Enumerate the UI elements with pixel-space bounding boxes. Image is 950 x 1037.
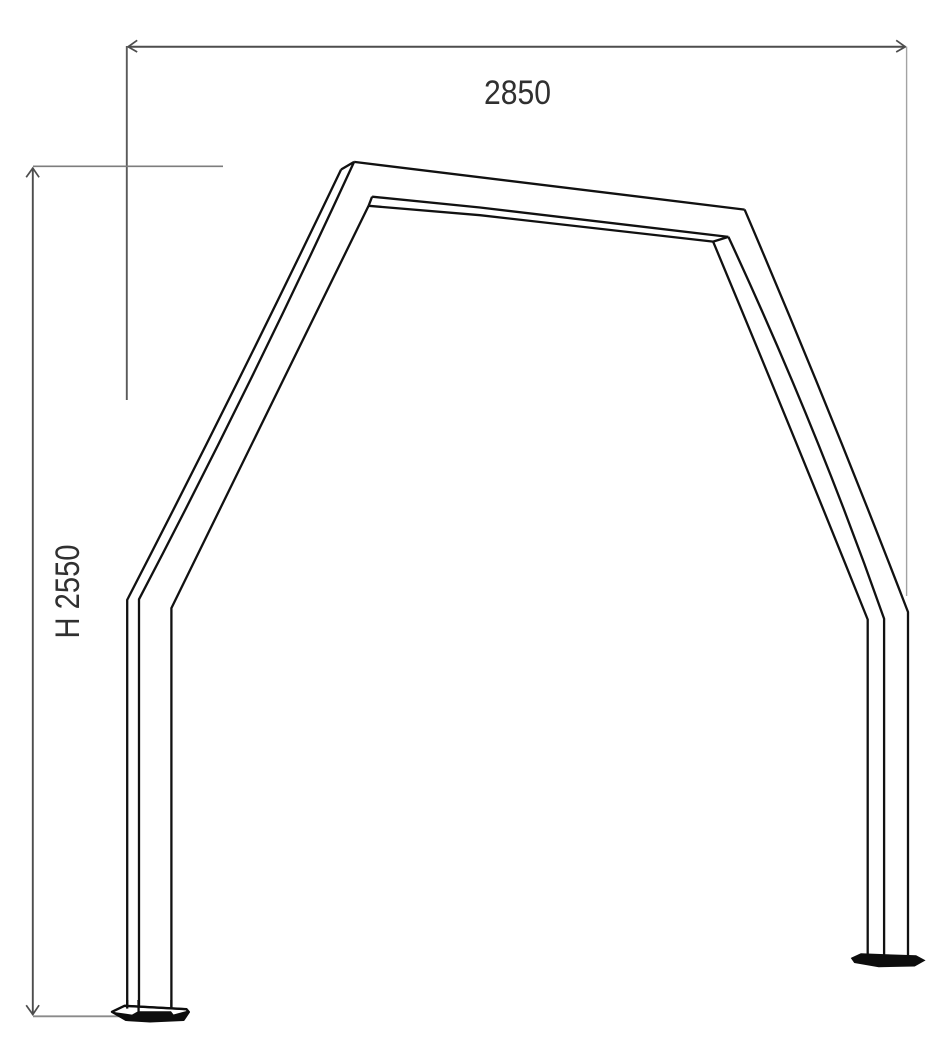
svg-text:2850: 2850: [484, 74, 551, 112]
svg-text:H 2550: H 2550: [49, 545, 87, 639]
